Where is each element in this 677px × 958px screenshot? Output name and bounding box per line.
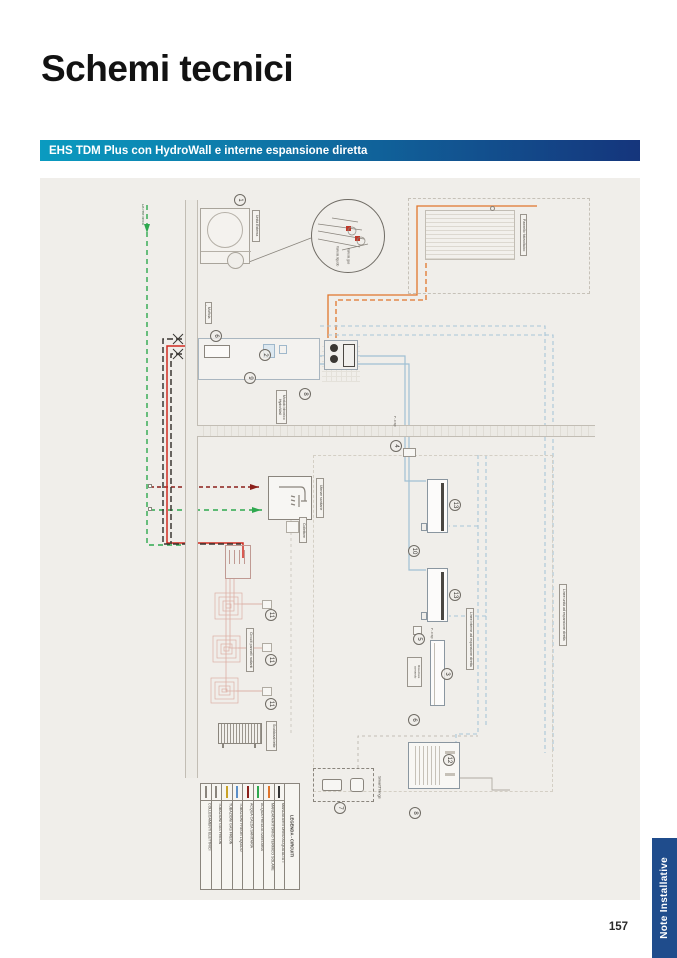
badge-13a: 13 [449,499,461,511]
diagram-panel: Unità Esterna Valvola liquido Valvola ga… [40,178,640,900]
fan-coil-2-grille [441,572,444,620]
legend-swatch [233,784,243,801]
badge-1: 1 [234,194,246,206]
phone-icon [322,779,342,791]
receiver-box: Ricevitore comando [407,657,422,687]
badge-7: 7 [334,802,346,814]
legend-entry-label: TUBAZIONI FREON LIQUIDO [233,801,243,889]
fc-bracket-2 [421,612,427,620]
page-number: 157 [570,921,628,933]
mains-tick-2 [148,507,152,511]
zone-valve-1 [262,600,272,609]
legend-entry: ACQUA FREDDA SANITARIA [254,784,265,889]
manifold-box [225,545,251,579]
badge-13b: 13 [449,589,461,601]
sanitary-label: Utenze sanitarie [316,478,324,518]
ducted-unit-line [434,643,435,705]
legend-entry-label: MANDATA/RITORNO TERMICO SOLARE [264,801,274,889]
badge-2: 2 [259,349,271,361]
hub-icon [350,778,364,792]
hydro-unit [198,338,320,380]
detail-valve-liquid-label: Valvola liquido [335,246,339,270]
floor-bar [197,425,595,437]
junction-box-label: Muffola derivazione [205,302,212,324]
dhw-tank [408,742,460,789]
fan-coil-1-grille [441,483,444,531]
sanitary-box [268,476,312,520]
compressor-icon [330,344,338,352]
manifold-teeth [229,550,249,564]
badge-8b: 8 [409,807,421,819]
fan-icon [207,212,243,248]
solar-panel-label: Pannello fotovoltaico [520,214,527,256]
legend-entry: TUBAZIONI GAS FREON [212,784,223,889]
legend-entry: COLLEGAMENTI ELETTRICI [201,784,212,889]
outdoor-unit-label: Unità Esterna [252,210,260,242]
legend-swatch [222,784,232,801]
legend-entry-label: COLLEGAMENTI ELETTRICI [201,801,211,889]
badge-8a: 8 [299,388,311,400]
water-mains-label: Da rete idrica [140,204,144,230]
badge-6b: 6 [408,714,420,726]
towel-radiator-label: Scaldasalviette [266,721,277,751]
section-banner: EHS TDM Plus con HydroWall e interne esp… [40,140,640,161]
legend-entry-label: TUBAZIONI GAS FREON [222,801,232,889]
expansion-tank-icon [204,345,230,358]
badge-11a: 11 [265,609,277,621]
zone-valve-2 [262,643,272,652]
outdoor-unit-divider [201,251,251,252]
fc-bracket-1 [421,523,427,531]
valve-icon [279,345,287,354]
legend-entry: TUBAZIONI FREON LIQUIDO [233,784,244,889]
radiator-leg-2 [254,744,256,748]
legend-entry-label: TUBAZIONI GAS FREON [212,801,222,889]
legend-entry: TUBAZIONI GAS FREON [222,784,233,889]
legend-entry: MANDATA/RITORNO TERMICO SOLARE [264,784,275,889]
legend-entry: MANDATA/RITORNO ACQUA ALTA T [275,784,286,889]
badge-9: 9 [244,372,256,384]
radiator-leg-1 [222,744,224,748]
badge-3: 3 [441,668,453,680]
legend-swatch [264,784,274,801]
wall-bar [185,200,198,778]
legend-swatch [201,784,211,801]
outdoor-unit [200,208,250,264]
fan-coil-2 [427,568,448,622]
legend-entry-label: MANDATA/RITORNO ACQUA ALTA T [275,801,285,889]
dx-lines-label: Linee interne ad espansione diretta [466,608,474,670]
legend-title: LEGENDA - CIRCUITI [285,784,299,889]
legend-swatch [275,784,285,801]
p-trap-label-2: P-Trap [392,416,396,432]
badge-4: 4 [390,440,402,452]
tank-port-2 [445,773,455,776]
fan-coil-1 [427,479,448,533]
detail-valve-gas-label: Valvola gas [346,248,350,270]
smartthings-label: SmartThings [377,776,381,802]
legend-entry-label: ACQUA CALDA SANITARIA [243,801,253,889]
compressor-icon-2 [330,355,338,363]
side-tab: Note Installative [652,838,677,958]
zone-valve-3 [262,687,272,696]
legend-table: COLLEGAMENTI ELETTRICITUBAZIONI GAS FREO… [200,783,300,890]
shower-icon [269,477,313,521]
badge-11c: 11 [265,698,277,710]
mains-tick [148,484,152,488]
badge-5: 5 [413,633,425,645]
valve-port-icon [227,252,244,269]
page-title: Schemi tecnici [41,48,293,90]
badge-12: 12 [443,754,455,766]
badge-11b: 11 [265,654,277,666]
smartthings-box [313,768,374,802]
legend-entry: ACQUA CALDA SANITARIA [243,784,254,889]
manifold-label: Collettore [299,517,307,543]
legend-swatch [212,784,222,801]
side-tab-label: Note Installative [659,857,670,939]
compressor-box [324,340,358,370]
section-banner-label: EHS TDM Plus con HydroWall e interne esp… [49,145,367,157]
legend-swatch [254,784,264,801]
heat-exchanger-icon [343,344,355,367]
radiant-label: Circuiti pannelli radianti [246,628,254,672]
badge-6a: 6 [210,330,222,342]
legend-swatch [243,784,253,801]
dx-units-label: Linee unità ad espansione diretta [559,584,567,646]
zone-box [286,521,299,533]
solar-panel [425,210,515,260]
solar-sensor-icon [490,206,495,211]
hydro-module-label: Modulo idronico HydroWall [276,390,287,424]
legend-entry-label: ACQUA FREDDA SANITARIA [254,801,264,889]
towel-radiator [218,723,262,744]
tank-coil [412,746,440,785]
badge-10: 10 [408,545,420,557]
valve-group-box [403,448,416,457]
